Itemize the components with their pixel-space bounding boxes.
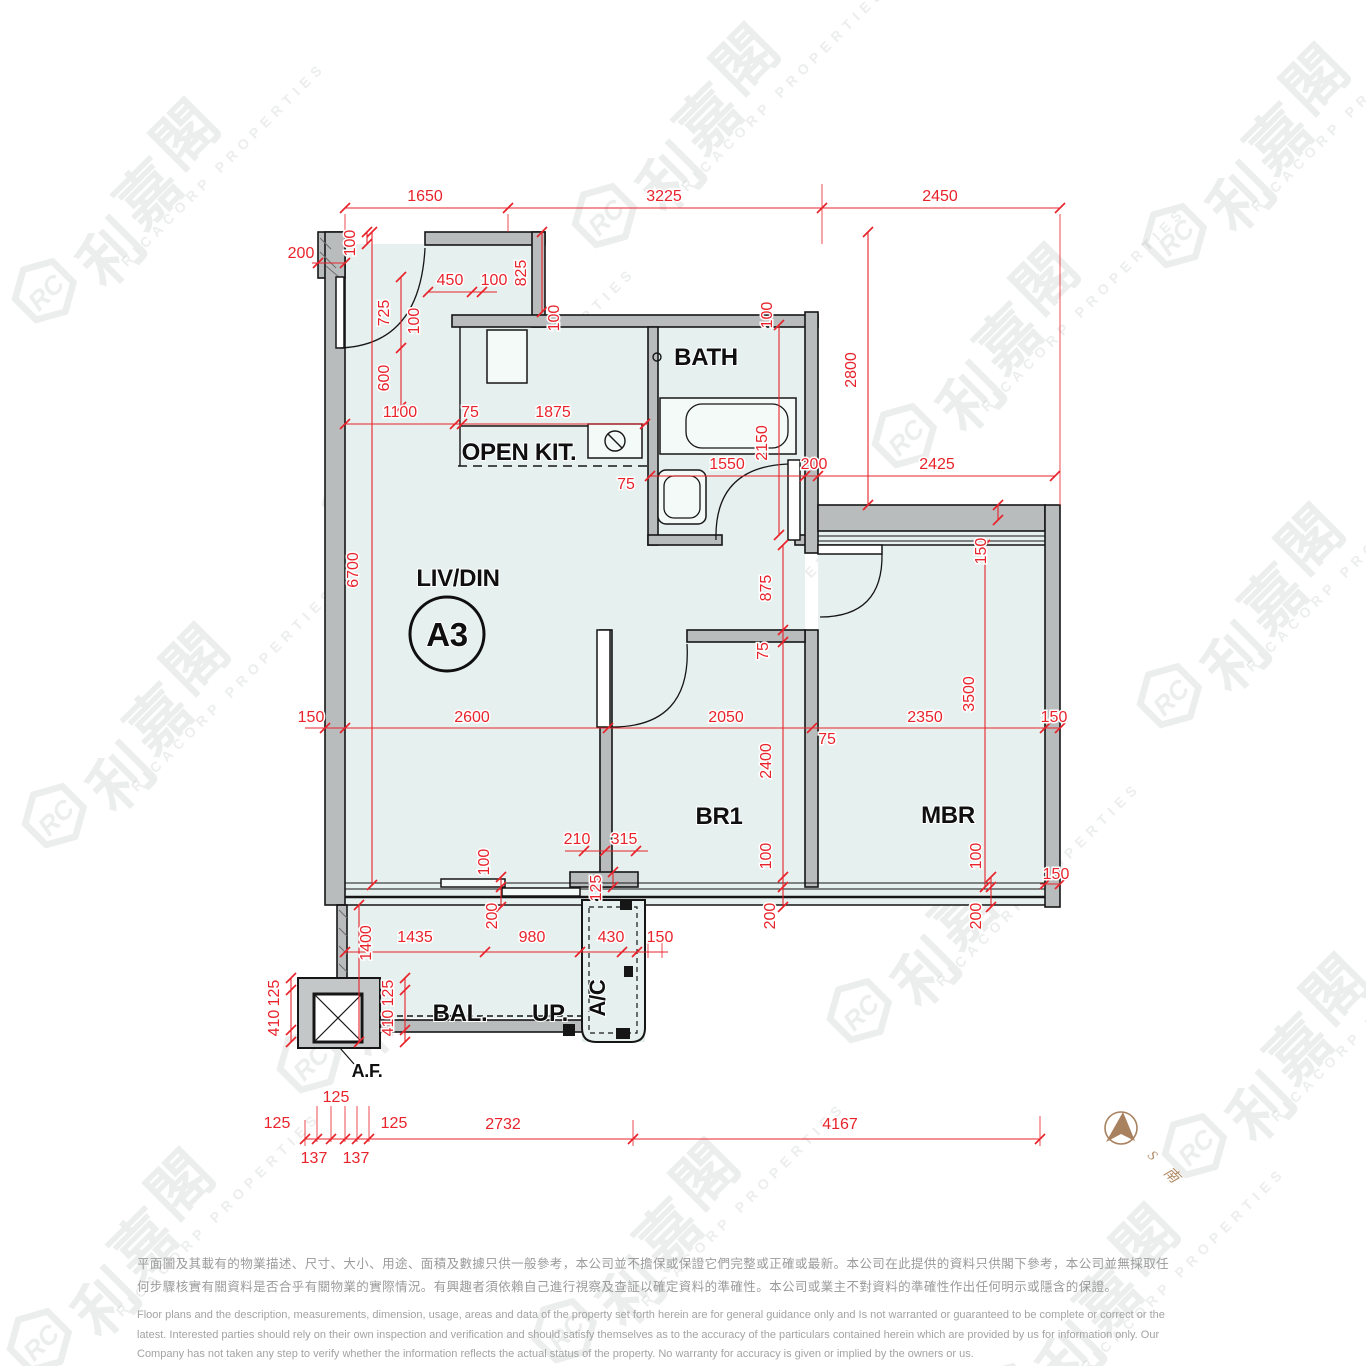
compass-south-char: 南 xyxy=(1160,1164,1184,1188)
dimension-label: 137 xyxy=(301,1150,328,1167)
disclaimer-en-line: latest. Interested parties should rely o… xyxy=(137,1326,1357,1346)
dimension-label: 2600 xyxy=(454,709,490,726)
dimension-label: 200 xyxy=(288,245,315,262)
dimension-label: 125 xyxy=(264,1115,291,1132)
dimension-label: 200 xyxy=(801,456,828,473)
dimension-label: 210 xyxy=(564,831,591,848)
room-label: BATH xyxy=(674,344,738,371)
dimension-label: 100 xyxy=(546,305,563,332)
dimension-label: 430 xyxy=(598,929,625,946)
disclaimer-zh-line: 平面圖及其載有的物業描述、尺寸、大小、用途、面積及數據只供一般參考，本公司並不擔… xyxy=(137,1253,1357,1276)
sliding-door-panel xyxy=(502,888,580,896)
dimension-label: 3500 xyxy=(961,676,978,712)
dimension-label: 1550 xyxy=(709,456,745,473)
north-compass-icon: S 南 xyxy=(1105,1112,1184,1188)
compass-s-label: S xyxy=(1144,1148,1160,1164)
room-label: BR1 xyxy=(695,803,742,830)
dimension-label: 75 xyxy=(617,476,635,493)
sliding-door-panel xyxy=(441,879,505,887)
dimension-label: 100 xyxy=(758,843,775,870)
dimension-label: 150 xyxy=(973,538,990,565)
dimension-label: 825 xyxy=(513,260,530,287)
dimension-label: 100 xyxy=(759,302,776,329)
room-label: A.F. xyxy=(352,1061,383,1081)
dimension-label: 125 xyxy=(323,1089,350,1106)
dimension-label: 150 xyxy=(298,709,325,726)
disclaimer-en-line: Company has not taken any step to verify… xyxy=(137,1345,1357,1365)
kitchen-appliance xyxy=(487,330,527,383)
toilet xyxy=(658,470,706,524)
dimension-label: 100 xyxy=(481,272,508,289)
floor-plan: 1650322524502001007256004501008251001001… xyxy=(0,0,1366,1210)
dimension-label: 200 xyxy=(762,903,779,930)
dimension-label: 200 xyxy=(968,903,985,930)
dimension-label: 125 xyxy=(381,1115,408,1132)
dimension-label: 125 xyxy=(588,875,605,902)
bath-vanity xyxy=(660,398,796,454)
dimension-label: 3225 xyxy=(646,188,682,205)
dimension-label: 150 xyxy=(1041,709,1068,726)
dimension-label: 2732 xyxy=(485,1116,521,1133)
dimension-label: 1435 xyxy=(397,929,433,946)
dimension-label: 150 xyxy=(1043,866,1070,883)
dimension-label: 75 xyxy=(818,731,836,748)
room-label: OPEN KIT. xyxy=(462,439,577,466)
disclaimer: 平面圖及其載有的物業描述、尺寸、大小、用途、面積及數據只供一般參考，本公司並不擔… xyxy=(137,1253,1357,1365)
br1-door-leaf xyxy=(597,630,610,727)
dimension-label: 100 xyxy=(476,849,493,876)
dimension-label: 150 xyxy=(647,929,674,946)
dimension-label: 2800 xyxy=(843,352,860,388)
dimension-label: 125 xyxy=(380,980,397,1007)
ac-platform xyxy=(582,900,645,1042)
dimension-label: 2400 xyxy=(758,743,775,779)
dimension-label: 410 xyxy=(266,1010,283,1037)
dimension-label: 2150 xyxy=(754,425,771,461)
disclaimer-en-line: Floor plans and the description, measure… xyxy=(137,1306,1357,1326)
dimension-label: 2350 xyxy=(907,709,943,726)
dimension-label: 100 xyxy=(406,308,423,335)
dimension-label: 75 xyxy=(461,404,479,421)
dimension-label: 100 xyxy=(968,843,985,870)
disclaimer-zh-line: 何步驟核實有關資料是否合乎有關物業的實際情況。有興趣者須依賴自己進行視察及查証以… xyxy=(137,1276,1357,1299)
dimension-label: 2450 xyxy=(922,188,958,205)
floorplan-page: { "unit": {"flat_label": "A3"}, "colors"… xyxy=(0,0,1366,1366)
room-label: BAL. xyxy=(433,1000,488,1027)
room-label: MBR xyxy=(921,802,975,829)
dimension-label: 725 xyxy=(376,300,393,327)
room-label: A/C xyxy=(585,979,610,1016)
dimension-label: 6700 xyxy=(345,552,362,588)
dimension-label: 450 xyxy=(437,272,464,289)
room-label: UP. xyxy=(532,1000,568,1027)
mbr-door-leaf xyxy=(818,545,882,554)
dimension-label: 2050 xyxy=(708,709,744,726)
dimension-label: 875 xyxy=(758,575,775,602)
dimension-label: 1100 xyxy=(383,404,418,421)
room-label: A3 xyxy=(426,616,468,653)
room-label: LIV/DIN xyxy=(416,565,499,592)
dimension-label: 4167 xyxy=(822,1116,858,1133)
entry-door-leaf xyxy=(336,277,344,348)
dimension-label: 600 xyxy=(376,365,393,392)
dimension-label: 75 xyxy=(755,642,772,660)
dimension-label: 1400 xyxy=(358,925,375,961)
dimension-label: 100 xyxy=(342,230,359,257)
dimension-label: 200 xyxy=(484,903,501,930)
dimension-label: 1650 xyxy=(407,188,443,205)
dimension-label: 1875 xyxy=(535,404,571,421)
dimension-label: 2425 xyxy=(919,456,955,473)
dimension-label: 410 xyxy=(380,1010,397,1037)
bath-door-leaf xyxy=(788,460,800,540)
dimension-label: 980 xyxy=(519,929,546,946)
dimension-label: 125 xyxy=(266,980,283,1007)
dimension-label: 315 xyxy=(611,831,638,848)
dimension-label: 137 xyxy=(343,1150,370,1167)
